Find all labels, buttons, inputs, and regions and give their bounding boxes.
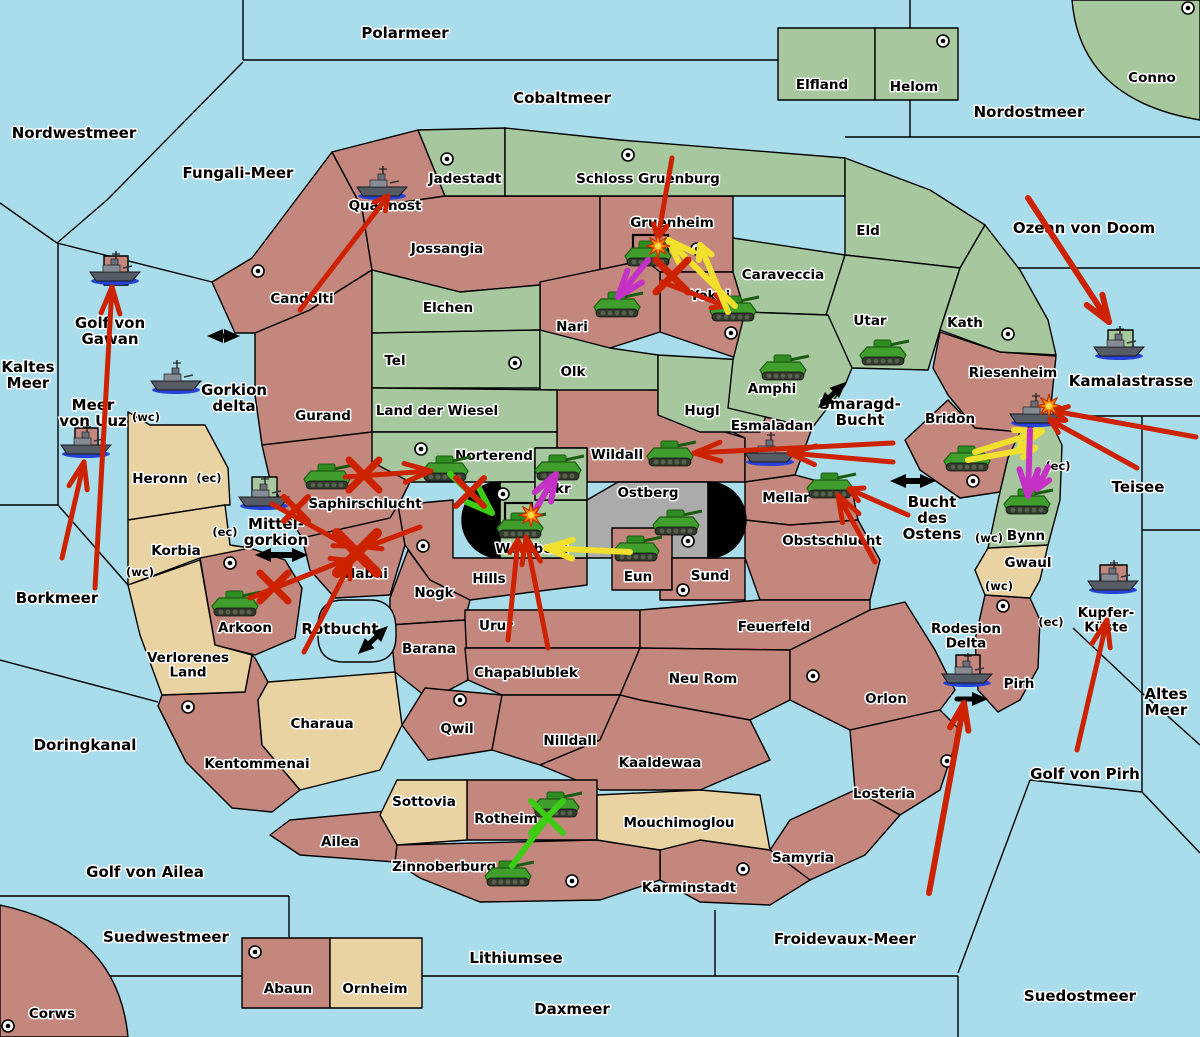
- sea-label-polarmeer: Polarmeer: [361, 24, 449, 42]
- war-map: CandoltiQualinostJossangiaGruenheimYokai…: [0, 0, 1200, 1037]
- city-dot: [682, 535, 694, 547]
- label-karminstadt: Karminstadt: [642, 880, 737, 896]
- label-corws: Corws: [29, 1006, 75, 1022]
- label-jossangia: Jossangia: [410, 241, 484, 257]
- sea-label-daxmeer: Daxmeer: [534, 1000, 610, 1018]
- region-sottovia[interactable]: [380, 780, 467, 845]
- explosion-icon: [519, 503, 543, 527]
- label-barana: Barana: [402, 641, 456, 657]
- label-arkoon: Arkoon: [218, 620, 272, 636]
- city-dot: [967, 475, 979, 487]
- label-zinnoberburg: Zinnoberburg: [392, 859, 496, 875]
- label-conno: Conno: [1128, 70, 1176, 86]
- city-dot: [807, 670, 819, 682]
- city-dot: [415, 443, 427, 455]
- sea-label-golf-von-ailea: Golf von Ailea: [86, 863, 204, 881]
- coast-mark: (ec): [196, 471, 221, 485]
- sea-label-lithiumsee: Lithiumsee: [469, 949, 562, 967]
- label-hugl: Hugl: [684, 403, 719, 419]
- label-amphi: Amphi: [748, 381, 796, 397]
- label-hills: Hills: [472, 571, 505, 587]
- label-qwil: Qwil: [440, 721, 473, 737]
- coast-mark: (wc): [126, 565, 154, 579]
- city-dot: [441, 153, 453, 165]
- label-charaua: Charaua: [290, 716, 353, 732]
- label-mellar: Mellar: [762, 490, 810, 506]
- city-dot: [497, 488, 509, 500]
- label-abaun: Abaun: [264, 981, 312, 997]
- label-losteria: Losteria: [853, 786, 915, 802]
- label-korbia: Korbia: [151, 543, 201, 559]
- label-nari: Nari: [556, 319, 588, 335]
- label-chapablublek: Chapablublek: [474, 665, 579, 681]
- coast-mark: (ec): [1038, 615, 1063, 629]
- label-rotheim: Rotheim: [474, 811, 538, 827]
- city-dot: [2, 1020, 14, 1032]
- label-mouchimoglou: Mouchimoglou: [623, 815, 734, 831]
- city-dot: [997, 600, 1009, 612]
- label-land-der-wiesel: Land der Wiesel: [376, 403, 498, 419]
- label-nogk: Nogk: [414, 585, 454, 601]
- label-riesenheim: Riesenheim: [969, 365, 1057, 381]
- label-nilldall: Nilldall: [543, 733, 596, 749]
- city-dot: [454, 694, 466, 706]
- label-helom: Helom: [890, 79, 938, 95]
- city-dot: [725, 327, 737, 339]
- label-ornheim: Ornheim: [342, 981, 407, 997]
- label-heronn: Heronn: [132, 471, 188, 487]
- label-esmaladan: Esmaladan: [731, 418, 814, 434]
- sea-label-ozean-von-doom: Ozean von Doom: [1013, 219, 1155, 237]
- label-saphirschlucht: Saphirschlucht: [308, 496, 422, 512]
- label-wildall: Wildall: [591, 447, 643, 463]
- sea-label-teisee: Teisee: [1112, 478, 1165, 496]
- city-dot: [252, 265, 264, 277]
- sea-label-froidevaux-meer: Froidevaux-Meer: [774, 930, 917, 948]
- city-dot: [1182, 2, 1194, 14]
- sea-label-kaltes-meer: KaltesMeer: [1, 358, 54, 392]
- label-sund: Sund: [691, 568, 730, 584]
- label-ailea: Ailea: [321, 834, 359, 850]
- city-dot: [417, 540, 429, 552]
- city-dot: [249, 946, 261, 958]
- city-dot: [509, 357, 521, 369]
- coast-mark: (wc): [975, 531, 1003, 545]
- region-ornheim[interactable]: [330, 938, 422, 1008]
- label-orlon: Orlon: [865, 691, 907, 707]
- label-norterend: Norterend: [455, 448, 533, 464]
- city-dot: [622, 149, 634, 161]
- map-canvas: CandoltiQualinostJossangiaGruenheimYokai…: [0, 0, 1200, 1037]
- label-kaaldewaa: Kaaldewaa: [619, 755, 702, 771]
- label-feuerfeld: Feuerfeld: [738, 619, 811, 635]
- sea-label-suedwestmeer: Suedwestmeer: [103, 928, 229, 946]
- sea-label-altes-meer: AltesMeer: [1144, 685, 1187, 719]
- sea-label-doringkanal: Doringkanal: [34, 736, 137, 754]
- label-elchen: Elchen: [423, 300, 473, 316]
- city-dot: [677, 584, 689, 596]
- label-gruenheim: Gruenheim: [630, 215, 714, 231]
- sea-label-suedostmeer: Suedostmeer: [1024, 987, 1137, 1005]
- sea-label-borkmeer: Borkmeer: [16, 589, 99, 607]
- label-utar: Utar: [853, 313, 887, 329]
- sea-label-fungali-meer: Fungali-Meer: [183, 164, 294, 182]
- sea-label-kamalastrasse: Kamalastrasse: [1069, 372, 1193, 390]
- label-olk: Olk: [560, 364, 586, 380]
- sea-label-cobaltmeer: Cobaltmeer: [513, 89, 611, 107]
- label-gwaul: Gwaul: [1005, 555, 1052, 571]
- label-neu-rom: Neu Rom: [669, 671, 738, 687]
- label-elfland: Elfland: [796, 77, 848, 93]
- label-ostberg: Ostberg: [617, 485, 678, 501]
- label-bynn: Bynn: [1007, 528, 1045, 544]
- label-eun: Eun: [624, 569, 652, 585]
- label-schloss-gruenburg: Schloss Gruenburg: [576, 171, 720, 187]
- city-dot: [182, 701, 194, 713]
- label-jadestadt: Jadestadt: [428, 171, 502, 187]
- label-caraveccia: Caraveccia: [742, 267, 824, 283]
- label-bridon: Bridon: [925, 411, 975, 427]
- explosion-icon: [646, 234, 670, 258]
- coast-mark: (ec): [212, 525, 237, 539]
- city-dot: [224, 557, 236, 569]
- explosion-icon: [1037, 394, 1061, 418]
- label-samyria: Samyria: [772, 850, 834, 866]
- city-dot: [937, 35, 949, 47]
- label-sottovia: Sottovia: [392, 794, 456, 810]
- sea-label-golf-von-pirh: Golf von Pirh: [1030, 765, 1140, 783]
- label-tel: Tel: [384, 353, 405, 369]
- sea-label-nordwestmeer: Nordwestmeer: [12, 124, 137, 142]
- label-gurand: Gurand: [295, 408, 351, 424]
- city-dot: [737, 863, 749, 875]
- city-dot: [566, 875, 578, 887]
- coast-mark: (wc): [985, 579, 1013, 593]
- city-dot: [1002, 328, 1014, 340]
- label-pirh: Pirh: [1004, 676, 1035, 692]
- label-kentommenai: Kentommenai: [204, 756, 309, 772]
- label-eld: Eld: [856, 223, 880, 239]
- label-kath: Kath: [947, 315, 983, 331]
- sea-label-nordostmeer: Nordostmeer: [974, 103, 1085, 121]
- coast-mark: (wc): [132, 410, 160, 424]
